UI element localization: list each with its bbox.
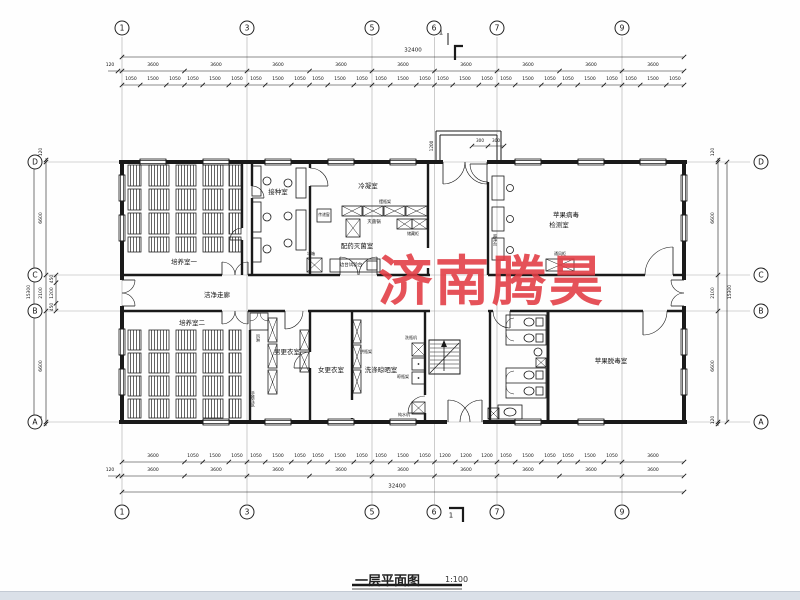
axis-bubble-6: 6: [427, 21, 442, 36]
dimension-label: 120: [712, 416, 717, 425]
dimension-label: 300: [476, 139, 484, 143]
dimension-label: 1050: [375, 78, 386, 83]
watermark: 济南腾昊: [378, 252, 606, 311]
dimension-label: 6600: [40, 360, 45, 371]
dimension-label: 1050: [231, 78, 242, 83]
pass-through-window: 传递窗: [318, 213, 329, 217]
dimension-label: 1050: [437, 78, 448, 83]
bottle-shelf: 摆瓶架: [379, 200, 391, 204]
dimension-label: 1050: [669, 78, 680, 83]
room-inoculation: 接种室: [268, 189, 288, 196]
dimension-label: 3600: [647, 64, 658, 69]
dimension-label: 2100: [712, 287, 717, 298]
dimension-label: 32400: [388, 484, 406, 490]
bottle-drying-rack-2: 晾瓶架: [397, 375, 409, 379]
dimension-label: 3600: [397, 469, 408, 474]
clean-bench: 超净台: [493, 234, 497, 246]
dimension-label: 3600: [335, 469, 346, 474]
drawing-title: 一层平面图: [355, 570, 420, 589]
dimension-label: 1500: [584, 455, 595, 460]
dimension-label: 3600: [272, 64, 283, 69]
axis-bubble-B: B: [28, 304, 43, 319]
dimension-label: 1500: [334, 455, 345, 460]
dimension-label: 1500: [272, 455, 283, 460]
room-condensation: 冷凝室: [358, 183, 378, 190]
dimension-label: 1050: [544, 455, 555, 460]
dimension-label: 3600: [647, 469, 658, 474]
axis-bubble-D: D: [754, 155, 769, 170]
axis-bubble-D: D: [28, 155, 43, 170]
axis-bubble-C: C: [28, 268, 43, 283]
dimension-label: 1050: [500, 455, 511, 460]
dimension-label: 3600: [585, 64, 596, 69]
dimension-label: 3600: [210, 469, 221, 474]
axis-bubble-5: 5: [365, 505, 380, 520]
dimension-label: 3600: [147, 469, 158, 474]
storage-cabinet: 储藏柜: [407, 232, 419, 236]
axis-bubble-1: 1: [115, 21, 130, 36]
axis-bubble-A: A: [28, 415, 43, 430]
stairs-icon: [429, 340, 460, 374]
axis-bubble-C: C: [754, 268, 769, 283]
drawing-scale: 1:100: [445, 575, 468, 584]
dimension-label: 1050: [481, 78, 492, 83]
dimension-label: 1500: [147, 78, 158, 83]
dimension-label: 1050: [544, 78, 555, 83]
footer-bar: [0, 591, 800, 600]
floor-plan-canvas: 3240012036003600360036003600360036003600…: [0, 0, 800, 600]
dimension-label: 1200: [460, 455, 471, 460]
axis-bubble-7: 7: [490, 505, 505, 520]
dimension-label: 1050: [356, 455, 367, 460]
dimension-label: 1050: [606, 78, 617, 83]
axis-bubble-1: 1: [115, 505, 130, 520]
bottle-washer: 洗瓶机: [405, 336, 417, 340]
axis-bubble-B: B: [754, 304, 769, 319]
dimension-label: 3600: [460, 64, 471, 69]
dimension-label: 1050: [562, 455, 573, 460]
dimension-label: 1050: [625, 78, 636, 83]
axis-bubble-3: 3: [240, 505, 255, 520]
dimension-label: 1050: [375, 455, 386, 460]
dimension-label: 450: [51, 275, 56, 284]
dimension-label: 2100: [40, 287, 45, 298]
dimension-label: 1200: [481, 455, 492, 460]
dimension-label: 1200: [430, 141, 434, 152]
dimension-label: 1050: [231, 455, 242, 460]
dimension-label: 15300: [28, 285, 33, 299]
dimension-label: 120: [106, 64, 115, 69]
dimension-label: 6600: [712, 360, 717, 371]
dimension-label: 1050: [356, 78, 367, 83]
section-mark-number: 1: [449, 513, 453, 520]
air-shower: 风淋: [256, 334, 260, 342]
dimension-label: 3600: [210, 64, 221, 69]
dimension-label: 3600: [460, 469, 471, 474]
dimension-label: 1500: [584, 78, 595, 83]
dimension-label: 3600: [335, 64, 346, 69]
dimension-label: 1200: [439, 455, 450, 460]
dimension-label: 1200: [51, 287, 56, 298]
dimension-label: 3600: [147, 64, 158, 69]
dimension-label: 120: [40, 148, 45, 157]
dimension-label: 1050: [125, 78, 136, 83]
dimension-label: 6600: [712, 212, 717, 223]
dimension-label: 3600: [272, 469, 283, 474]
dimension-label: 1500: [522, 78, 533, 83]
dimension-label: 1500: [209, 455, 220, 460]
room-apple-virus-line2: 检测室: [549, 222, 569, 229]
room-men-changing: 男更衣室: [274, 349, 300, 356]
dimension-label: 1050: [419, 455, 430, 460]
dimension-label: 1050: [187, 455, 198, 460]
dimension-label: 3600: [147, 455, 158, 460]
room-dispensing-sterilization: 配药灭菌室: [341, 243, 374, 250]
pure-water-machine: 纯水机: [398, 413, 410, 417]
dimension-label: 15300: [729, 285, 734, 299]
room-apple-virus-line1: 苹果病毒: [553, 212, 579, 219]
dimension-label: 1050: [312, 78, 323, 83]
axis-bubble-5: 5: [365, 21, 380, 36]
dimension-label: 1500: [397, 455, 408, 460]
dimension-label: 1050: [500, 78, 511, 83]
axis-bubble-A: A: [754, 415, 769, 430]
dimension-label: 3600: [522, 64, 533, 69]
dimension-label: 1500: [522, 455, 533, 460]
side-test-bench: 边台试验台: [340, 264, 363, 269]
clean-corridor: 洁净走廊: [204, 292, 230, 299]
dimension-label: 1050: [419, 78, 430, 83]
dimension-label: 1500: [647, 78, 658, 83]
axis-bubble-6: 6: [427, 505, 442, 520]
dimension-label: 120: [712, 148, 717, 157]
dimension-label: 1050: [250, 455, 261, 460]
cart-area: 手推车区: [251, 391, 255, 407]
dimension-label: 1500: [397, 78, 408, 83]
room-cultivation-1: 培养室一: [171, 259, 197, 266]
dimension-label: 1050: [187, 78, 198, 83]
refrigerator: 冰箱: [307, 252, 315, 256]
dimension-label: 3600: [522, 469, 533, 474]
axis-bubble-9: 9: [615, 21, 630, 36]
dimension-label: 120: [106, 469, 115, 474]
dimension-label: 450: [51, 303, 56, 312]
dimension-label: 1500: [209, 78, 220, 83]
dimension-label: 1050: [169, 78, 180, 83]
dimension-label: 300: [492, 139, 500, 143]
dimension-label: 1050: [312, 455, 323, 460]
dimension-label: 1050: [294, 78, 305, 83]
dimension-label: 1050: [562, 78, 573, 83]
room-apple-detox: 苹果脱毒室: [595, 358, 628, 365]
dimension-label: 1050: [606, 455, 617, 460]
room-washing-drying: 洗涤晾晒室: [365, 367, 398, 374]
dimension-label: 1050: [294, 455, 305, 460]
dimension-label: 6600: [40, 212, 45, 223]
dimension-label: 1050: [250, 78, 261, 83]
sterilizer: 灭菌锅: [367, 221, 381, 226]
dimension-label: 1500: [334, 78, 345, 83]
dimension-label: 3600: [647, 455, 658, 460]
dimension-label: 1500: [459, 78, 470, 83]
axis-bubble-9: 9: [615, 505, 630, 520]
dimension-label: 3600: [397, 64, 408, 69]
room-women-changing: 女更衣室: [318, 367, 344, 374]
dimension-label: 1500: [272, 78, 283, 83]
dimension-label: 32400: [404, 48, 422, 54]
axis-bubble-3: 3: [240, 21, 255, 36]
axis-bubble-7: 7: [490, 21, 505, 36]
room-cultivation-2: 培养室二: [179, 320, 205, 327]
dimension-label: 3600: [585, 469, 596, 474]
bottle-drying-rack-1: 烘瓶架: [360, 350, 372, 354]
